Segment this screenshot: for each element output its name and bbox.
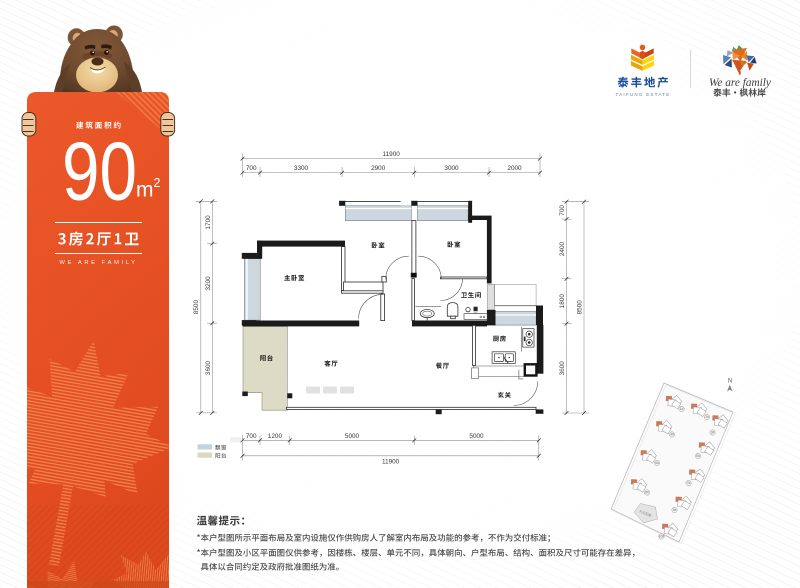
svg-text:2#: 2# [705, 415, 709, 419]
svg-text:3200: 3200 [205, 276, 212, 291]
svg-text:1#: 1# [680, 407, 684, 411]
svg-text:4#: 4# [670, 433, 674, 437]
svg-text:2: 2 [154, 176, 161, 190]
svg-text:We are family: We are family [709, 77, 772, 89]
svg-text:2400: 2400 [559, 241, 566, 256]
svg-text:8500: 8500 [193, 300, 200, 315]
svg-text:1200: 1200 [268, 433, 283, 440]
svg-text:5000: 5000 [345, 433, 360, 440]
svg-text:700: 700 [246, 165, 257, 172]
svg-text:3600: 3600 [559, 361, 566, 376]
svg-text:6#: 6# [655, 461, 659, 465]
svg-text:3600: 3600 [205, 360, 212, 375]
svg-text:11900: 11900 [382, 459, 400, 466]
svg-text:7#: 7# [687, 481, 691, 485]
svg-text:2900: 2900 [371, 165, 386, 172]
svg-text:5000: 5000 [469, 433, 484, 440]
svg-text:8500: 8500 [577, 300, 584, 315]
svg-text:1800: 1800 [559, 294, 566, 309]
svg-text:WE ARE FAMILY: WE ARE FAMILY [59, 260, 137, 266]
svg-text:8#: 8# [645, 491, 649, 495]
svg-text:2000: 2000 [507, 165, 522, 172]
svg-text:90: 90 [62, 125, 137, 218]
svg-text:5#: 5# [696, 454, 700, 458]
svg-text:3300: 3300 [294, 165, 309, 172]
svg-text:N: N [728, 379, 732, 385]
svg-text:m: m [136, 179, 154, 202]
svg-text:10#: 10# [659, 535, 665, 539]
svg-text:700: 700 [559, 205, 566, 216]
svg-text:TAIFUNG ESTATE: TAIFUNG ESTATE [615, 92, 670, 97]
svg-text:9#: 9# [673, 508, 677, 512]
svg-text:3#: 3# [711, 431, 715, 435]
svg-text:1700: 1700 [205, 215, 212, 230]
svg-text:3000: 3000 [444, 165, 459, 172]
svg-text:11900: 11900 [383, 151, 401, 158]
svg-text:700: 700 [246, 433, 257, 440]
